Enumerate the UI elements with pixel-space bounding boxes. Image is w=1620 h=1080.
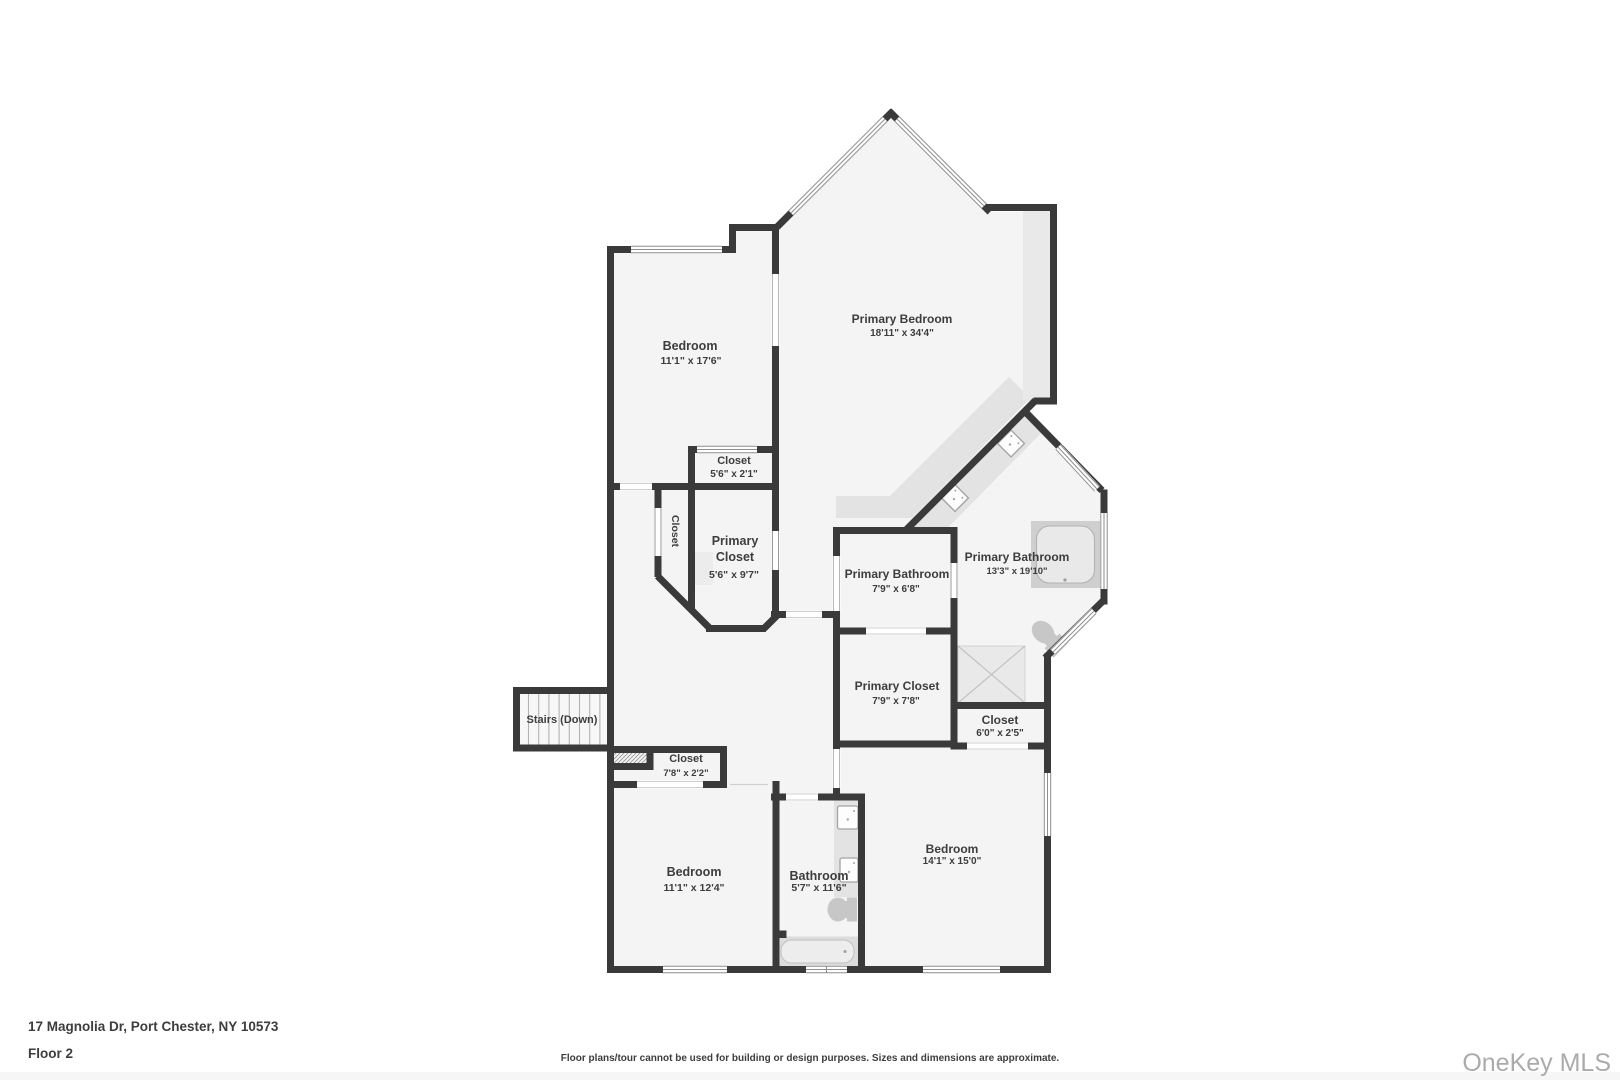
svg-text:Closet: Closet — [716, 550, 755, 564]
svg-text:Primary Bedroom: Primary Bedroom — [852, 312, 953, 326]
svg-text:14'1" x 15'0": 14'1" x 15'0" — [923, 856, 982, 867]
svg-text:Primary Bathroom: Primary Bathroom — [845, 567, 950, 581]
svg-text:7'9" x 7'8": 7'9" x 7'8" — [872, 696, 920, 707]
svg-text:Floor plans/tour cannot be use: Floor plans/tour cannot be used for buil… — [561, 1053, 1060, 1064]
svg-text:Floor 2: Floor 2 — [28, 1046, 73, 1061]
svg-text:Primary: Primary — [712, 534, 759, 548]
svg-text:5'7" x 11'6": 5'7" x 11'6" — [791, 882, 846, 894]
svg-text:11'1" x 12'4": 11'1" x 12'4" — [663, 882, 724, 894]
svg-text:Closet: Closet — [669, 753, 703, 765]
svg-text:Closet: Closet — [717, 455, 751, 467]
svg-text:OneKey MLS: OneKey MLS — [1462, 1049, 1611, 1077]
svg-text:7'9" x 6'8": 7'9" x 6'8" — [872, 584, 920, 595]
svg-text:5'6" x 2'1": 5'6" x 2'1" — [710, 469, 758, 480]
svg-text:Closet: Closet — [982, 713, 1019, 727]
svg-text:7'8" x 2'2": 7'8" x 2'2" — [663, 768, 708, 779]
svg-text:17 Magnolia Dr, Port Chester,: 17 Magnolia Dr, Port Chester, NY 10573 — [28, 1019, 279, 1034]
svg-text:11'1" x 17'6": 11'1" x 17'6" — [660, 355, 721, 367]
svg-text:Stairs (Down): Stairs (Down) — [527, 714, 598, 726]
svg-text:Primary Closet: Primary Closet — [855, 679, 940, 693]
svg-text:18'11" x 34'4": 18'11" x 34'4" — [870, 328, 934, 339]
svg-text:Closet: Closet — [669, 515, 681, 548]
svg-text:Bathroom: Bathroom — [789, 869, 848, 883]
svg-text:6'0" x 2'5": 6'0" x 2'5" — [976, 728, 1024, 739]
svg-text:Primary Bathroom: Primary Bathroom — [965, 550, 1070, 564]
svg-text:5'6" x 9'7": 5'6" x 9'7" — [709, 569, 759, 581]
svg-text:Bedroom: Bedroom — [667, 865, 722, 879]
svg-text:13'3" x 19'10": 13'3" x 19'10" — [986, 566, 1047, 577]
svg-text:Bedroom: Bedroom — [926, 842, 979, 856]
svg-text:Bedroom: Bedroom — [663, 339, 718, 353]
